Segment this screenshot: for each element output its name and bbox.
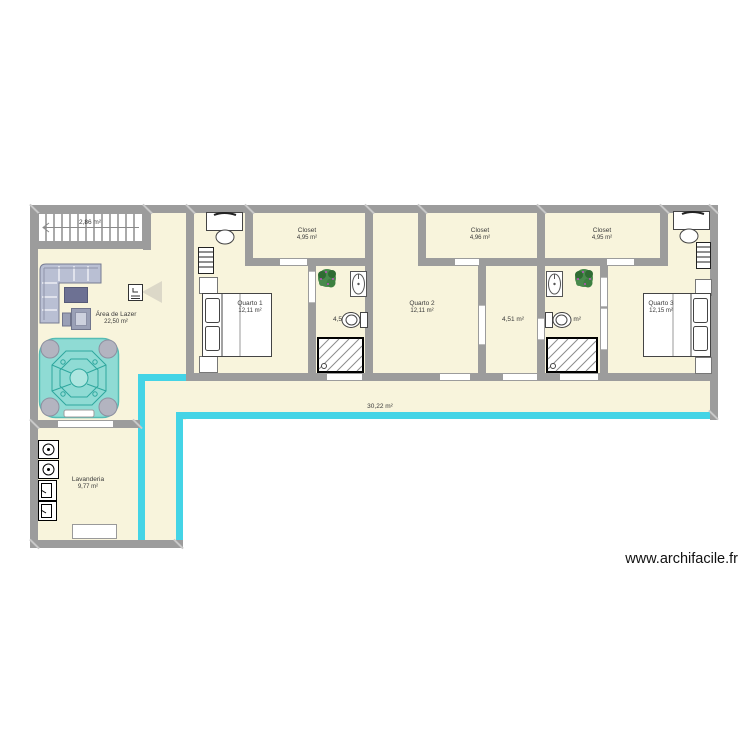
stairs-icon[interactable] bbox=[38, 213, 143, 242]
toilet-icon[interactable] bbox=[341, 311, 368, 329]
washer-icon[interactable] bbox=[38, 440, 59, 459]
dresser-icon[interactable] bbox=[198, 247, 214, 274]
quarto1-label: Quarto 112,11 m² bbox=[237, 300, 262, 316]
hot-tub-icon[interactable] bbox=[38, 337, 120, 420]
floor-plan-canvas: 2,86 m² Closet4,95 m² Closet4,96 m² Clos… bbox=[0, 0, 750, 750]
dryer-icon[interactable] bbox=[38, 480, 57, 501]
toilet-icon[interactable] bbox=[545, 311, 572, 329]
door-opening[interactable] bbox=[503, 374, 537, 380]
wall-closet2-left[interactable] bbox=[418, 205, 426, 266]
quarto3-label: Quarto 312,15 m² bbox=[648, 300, 673, 316]
room-floor-lavanderia[interactable] bbox=[38, 420, 176, 540]
door-opening[interactable] bbox=[280, 259, 307, 265]
door-opening[interactable] bbox=[455, 259, 479, 265]
room-floor-corridor[interactable] bbox=[145, 380, 713, 412]
door-opening[interactable] bbox=[601, 277, 607, 307]
closet1-label: Closet4,95 m² bbox=[297, 227, 317, 243]
side-table-icon[interactable] bbox=[62, 308, 91, 330]
door-leaf-icon[interactable] bbox=[199, 277, 218, 294]
stairs-area-label: 2,86 m² bbox=[79, 219, 101, 227]
door-opening[interactable] bbox=[327, 374, 362, 380]
wall-left[interactable] bbox=[30, 205, 38, 548]
wall-lazer-quarto1[interactable] bbox=[186, 205, 194, 381]
door-opening[interactable] bbox=[58, 421, 113, 427]
door-leaf-icon[interactable] bbox=[695, 357, 712, 374]
archifacile-watermark: www.archifacile.fr bbox=[625, 551, 738, 567]
middle-room-area-label: 4,51 m² bbox=[502, 316, 524, 324]
door-opening[interactable] bbox=[560, 374, 598, 380]
door-opening[interactable] bbox=[309, 271, 315, 303]
door-leaf-icon[interactable] bbox=[199, 356, 218, 373]
wall-bottom-wing[interactable] bbox=[30, 540, 183, 548]
door-opening[interactable] bbox=[607, 259, 634, 265]
wall-right[interactable] bbox=[710, 205, 718, 420]
lavanderia-label: Lavanderia9,77 m² bbox=[72, 476, 104, 492]
coffee-table-icon[interactable] bbox=[64, 287, 88, 303]
door-opening[interactable] bbox=[479, 305, 485, 345]
dryer-icon[interactable] bbox=[38, 501, 57, 521]
quarto2-label: Quarto 212,11 m² bbox=[409, 300, 434, 316]
door-opening[interactable] bbox=[440, 374, 470, 380]
washer-icon[interactable] bbox=[38, 460, 59, 479]
shower-icon[interactable] bbox=[546, 337, 598, 373]
shower-icon[interactable] bbox=[317, 337, 364, 373]
closet2-label: Closet4,96 m² bbox=[470, 227, 490, 243]
door-opening[interactable] bbox=[601, 308, 607, 350]
selected-room-outline-bottom[interactable] bbox=[176, 412, 713, 419]
wall-closet2-bottom[interactable] bbox=[418, 258, 545, 266]
plant-icon[interactable] bbox=[316, 267, 338, 289]
closet3-label: Closet4,95 m² bbox=[592, 227, 612, 243]
wall-middle-bath3[interactable] bbox=[537, 205, 545, 381]
area-lazer-label: Área de Lazer22,50 m² bbox=[96, 311, 137, 327]
tv-icon[interactable] bbox=[128, 278, 164, 306]
wall-closet1-left[interactable] bbox=[245, 205, 253, 266]
dresser-icon[interactable] bbox=[696, 242, 711, 269]
door-opening[interactable] bbox=[538, 318, 544, 340]
wall-stairs-bottom[interactable] bbox=[38, 242, 151, 249]
selected-room-outline-inner[interactable] bbox=[176, 412, 183, 542]
desk-icon[interactable] bbox=[672, 210, 710, 244]
sink-icon[interactable] bbox=[350, 271, 367, 297]
desk-icon[interactable] bbox=[206, 211, 244, 245]
selected-room-outline-left[interactable] bbox=[138, 374, 145, 542]
cabinet-icon[interactable] bbox=[72, 524, 117, 539]
wall-closet1-bottom[interactable] bbox=[245, 258, 373, 266]
wall-closet3-right[interactable] bbox=[660, 205, 668, 266]
plant-icon[interactable] bbox=[573, 267, 595, 289]
sink-icon[interactable] bbox=[546, 271, 563, 297]
corridor-area-label: 30,22 m² bbox=[367, 403, 393, 411]
